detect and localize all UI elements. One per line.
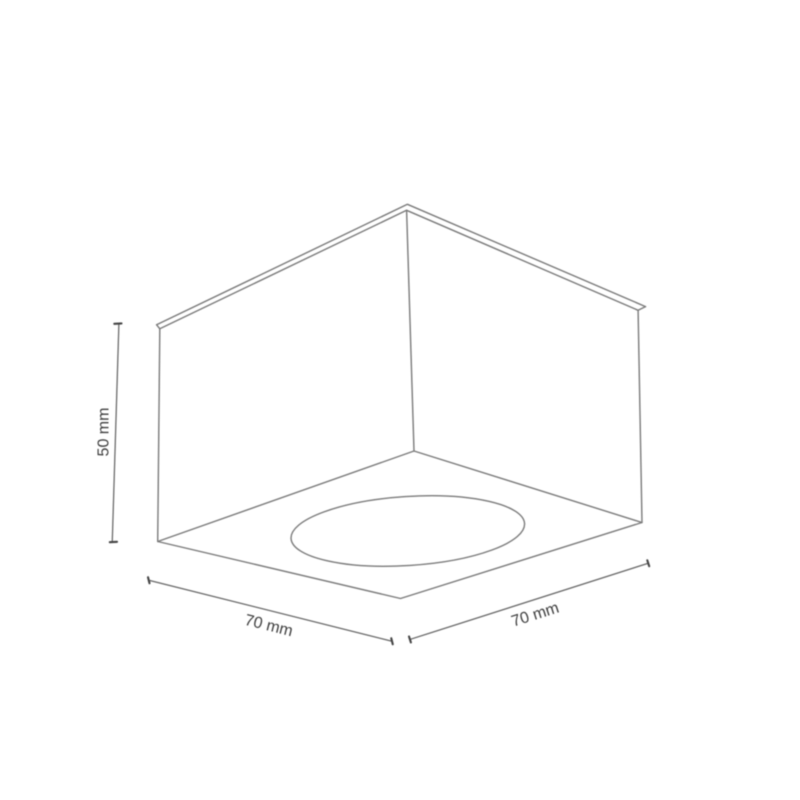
svg-text:50 mm: 50 mm <box>96 408 113 457</box>
svg-text:70 mm: 70 mm <box>509 600 561 631</box>
svg-text:70 mm: 70 mm <box>243 612 295 640</box>
